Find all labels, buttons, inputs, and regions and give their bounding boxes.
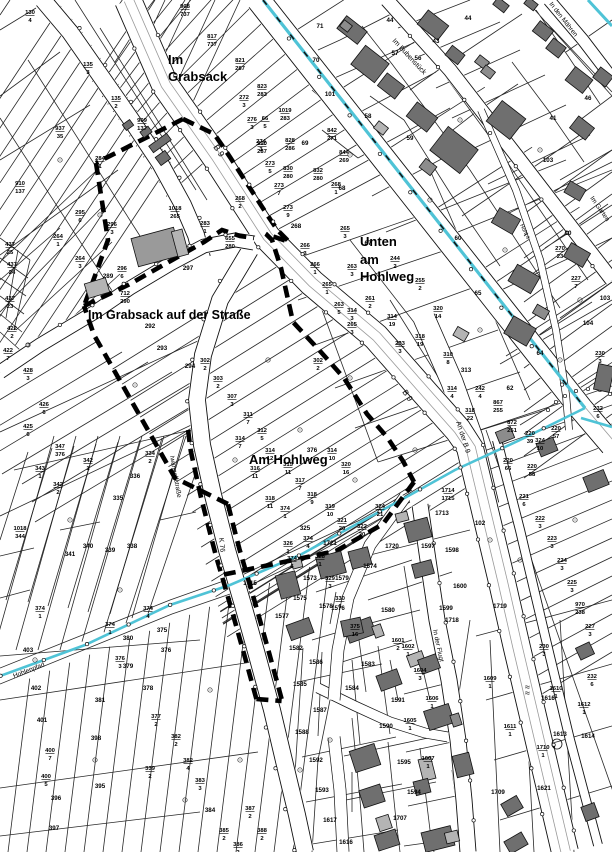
svg-text:283: 283 — [257, 92, 268, 98]
svg-text:44: 44 — [387, 17, 394, 24]
svg-text:22: 22 — [467, 416, 474, 422]
svg-text:1715: 1715 — [441, 496, 455, 502]
svg-text:19: 19 — [417, 342, 424, 348]
svg-text:396: 396 — [51, 795, 62, 802]
svg-text:268: 268 — [291, 223, 302, 230]
svg-text:238: 238 — [575, 610, 586, 616]
svg-text:265: 265 — [170, 214, 181, 220]
svg-text:14: 14 — [435, 314, 442, 320]
svg-text:395: 395 — [95, 783, 106, 790]
svg-text:Grabsack: Grabsack — [168, 69, 228, 84]
svg-text:1573: 1573 — [303, 575, 317, 582]
svg-text:1587: 1587 — [313, 707, 327, 714]
svg-text:1588: 1588 — [295, 729, 309, 736]
svg-text:1600: 1600 — [453, 583, 467, 590]
svg-text:1584: 1584 — [345, 685, 359, 692]
svg-text:403: 403 — [23, 647, 34, 654]
svg-text:137: 137 — [15, 189, 26, 195]
svg-text:21: 21 — [377, 512, 384, 518]
svg-text:380: 380 — [123, 635, 134, 642]
svg-text:1721: 1721 — [323, 540, 337, 547]
svg-text:1713: 1713 — [435, 510, 449, 517]
svg-text:1707: 1707 — [393, 815, 407, 822]
svg-text:1718: 1718 — [445, 617, 459, 624]
svg-text:103: 103 — [600, 295, 611, 302]
svg-text:35: 35 — [57, 134, 64, 140]
svg-text:338: 338 — [127, 543, 138, 550]
svg-text:376: 376 — [161, 647, 172, 654]
svg-text:379: 379 — [123, 663, 134, 670]
svg-text:1613: 1613 — [553, 731, 567, 738]
svg-text:293: 293 — [157, 345, 168, 352]
svg-text:287: 287 — [235, 66, 246, 72]
svg-text:70: 70 — [313, 57, 320, 64]
svg-text:289: 289 — [103, 273, 114, 280]
svg-text:1617: 1617 — [323, 817, 337, 824]
svg-text:1614: 1614 — [581, 733, 595, 740]
svg-text:62: 62 — [507, 385, 514, 392]
svg-text:1577: 1577 — [275, 613, 289, 620]
svg-text:271: 271 — [327, 136, 338, 142]
svg-text:1580: 1580 — [381, 607, 395, 614]
svg-text:40: 40 — [565, 230, 572, 237]
svg-text:58: 58 — [529, 472, 536, 478]
svg-text:103: 103 — [543, 157, 554, 164]
svg-text:1715: 1715 — [243, 580, 257, 587]
svg-text:46: 46 — [585, 95, 592, 102]
svg-text:1575: 1575 — [293, 595, 307, 602]
svg-text:56: 56 — [415, 55, 422, 62]
svg-text:12: 12 — [267, 456, 274, 462]
svg-text:66: 66 — [505, 466, 512, 472]
svg-text:1709: 1709 — [491, 789, 505, 796]
svg-text:336: 336 — [130, 473, 141, 480]
svg-text:255: 255 — [493, 408, 504, 414]
svg-text:1576: 1576 — [331, 605, 345, 612]
svg-text:43: 43 — [433, 38, 440, 45]
svg-text:65: 65 — [475, 290, 482, 297]
svg-text:398: 398 — [91, 735, 102, 742]
svg-text:67: 67 — [365, 240, 372, 247]
svg-text:10: 10 — [329, 456, 336, 462]
svg-text:335: 335 — [113, 495, 124, 502]
svg-text:57: 57 — [553, 434, 560, 440]
svg-text:59: 59 — [407, 135, 414, 142]
svg-text:375: 375 — [157, 627, 168, 634]
svg-text:294: 294 — [185, 363, 196, 370]
svg-text:11: 11 — [267, 504, 274, 510]
svg-text:292: 292 — [145, 323, 156, 330]
svg-text:1616: 1616 — [339, 839, 353, 846]
svg-text:am: am — [360, 252, 379, 267]
svg-text:64: 64 — [537, 350, 544, 357]
svg-text:16: 16 — [352, 632, 359, 638]
svg-text:101: 101 — [325, 91, 336, 98]
svg-text:1574: 1574 — [363, 563, 377, 570]
svg-text:384: 384 — [205, 807, 216, 814]
svg-text:Im: Im — [168, 52, 183, 67]
svg-text:344: 344 — [15, 534, 26, 540]
svg-text:41: 41 — [550, 115, 557, 122]
svg-text:16: 16 — [343, 470, 350, 476]
svg-text:290: 290 — [120, 299, 131, 305]
svg-text:280: 280 — [225, 244, 236, 250]
svg-text:1598: 1598 — [445, 547, 459, 554]
svg-text:251: 251 — [507, 428, 518, 434]
svg-text:25: 25 — [7, 250, 14, 256]
svg-text:1592: 1592 — [309, 757, 323, 764]
svg-text:68: 68 — [339, 185, 346, 192]
svg-text:381: 381 — [95, 697, 106, 704]
svg-text:1621: 1621 — [537, 785, 551, 792]
svg-text:71: 71 — [317, 23, 324, 30]
svg-text:737: 737 — [180, 12, 191, 18]
svg-text:313: 313 — [461, 367, 472, 374]
svg-text:340: 340 — [83, 543, 94, 550]
svg-text:297: 297 — [183, 265, 194, 272]
svg-text:20: 20 — [339, 526, 346, 532]
svg-text:23: 23 — [557, 254, 564, 260]
svg-text:1585: 1585 — [293, 681, 307, 688]
svg-text:1583: 1583 — [361, 661, 375, 668]
svg-text:280: 280 — [313, 176, 324, 182]
svg-text:1595: 1595 — [397, 759, 411, 766]
svg-text:737: 737 — [207, 42, 218, 48]
svg-text:283: 283 — [280, 116, 291, 122]
svg-text:397: 397 — [49, 825, 60, 832]
svg-text:102: 102 — [475, 520, 486, 527]
svg-text:39: 39 — [527, 439, 534, 445]
svg-text:1579: 1579 — [335, 575, 349, 582]
svg-text:1720: 1720 — [385, 543, 399, 550]
svg-text:325: 325 — [300, 525, 311, 532]
svg-text:57: 57 — [392, 50, 399, 57]
svg-text:1719: 1719 — [493, 603, 507, 610]
svg-text:Hohlweg: Hohlweg — [360, 269, 414, 284]
svg-text:10: 10 — [327, 512, 334, 518]
svg-text:69: 69 — [302, 140, 309, 147]
svg-text:269: 269 — [339, 158, 350, 164]
svg-text:1590: 1590 — [379, 723, 393, 730]
svg-text:1582: 1582 — [289, 645, 303, 652]
svg-text:1597: 1597 — [421, 543, 435, 550]
svg-text:60: 60 — [455, 235, 462, 242]
svg-text:104: 104 — [583, 320, 594, 327]
svg-text:339: 339 — [105, 547, 116, 554]
svg-text:1593: 1593 — [315, 787, 329, 794]
svg-text:11: 11 — [285, 470, 292, 476]
svg-text:280: 280 — [283, 174, 294, 180]
svg-text:≈: ≈ — [525, 688, 530, 698]
svg-text:341: 341 — [65, 551, 76, 558]
svg-text:1616: 1616 — [541, 695, 555, 702]
svg-text:1599: 1599 — [439, 605, 453, 612]
svg-text:1594: 1594 — [407, 789, 421, 796]
svg-text:1591: 1591 — [391, 697, 405, 704]
svg-text:24: 24 — [9, 270, 16, 276]
svg-text:44: 44 — [465, 15, 472, 22]
svg-text:137: 137 — [137, 126, 148, 132]
svg-text:20: 20 — [359, 532, 366, 538]
svg-text:11: 11 — [252, 474, 259, 480]
svg-text:376: 376 — [55, 452, 66, 458]
svg-text:Im Grabsack auf der Straße: Im Grabsack auf der Straße — [88, 308, 251, 322]
svg-text:378: 378 — [143, 685, 154, 692]
svg-text:19: 19 — [389, 322, 396, 328]
svg-text:286: 286 — [285, 146, 296, 152]
svg-text:10: 10 — [537, 446, 544, 452]
svg-text:1586: 1586 — [309, 659, 323, 666]
svg-text:58: 58 — [365, 113, 372, 120]
svg-text:23: 23 — [7, 304, 14, 310]
svg-text:402: 402 — [31, 685, 42, 692]
svg-text:376: 376 — [307, 447, 318, 454]
svg-text:401: 401 — [37, 717, 48, 724]
